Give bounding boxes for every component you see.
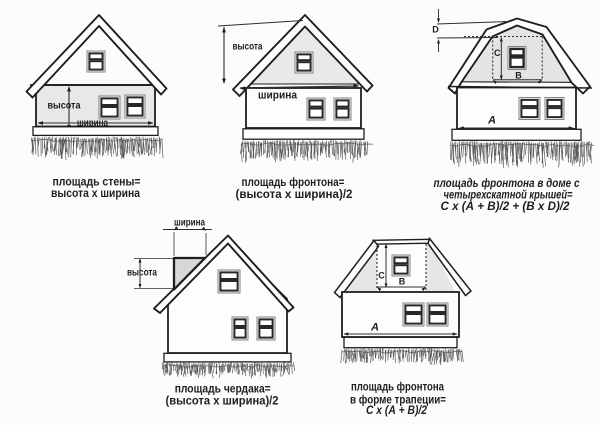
svg-text:высота: высота [127, 268, 157, 279]
svg-text:высота х ширина: высота х ширина [51, 186, 140, 200]
svg-text:площадь фронтона: площадь фронтона [351, 380, 444, 394]
svg-text:(высота х ширина)/2: (высота х ширина)/2 [236, 187, 353, 201]
svg-text:высота: высота [48, 101, 81, 112]
svg-text:ширина: ширина [258, 90, 298, 102]
svg-text:B: B [399, 277, 406, 287]
svg-text:A: A [370, 322, 379, 334]
svg-text:ширина: ширина [174, 218, 205, 229]
svg-text:C: C [378, 271, 385, 281]
svg-text:C: C [494, 48, 501, 58]
svg-text:(высота х ширина)/2: (высота х ширина)/2 [166, 394, 279, 408]
svg-text:высота: высота [233, 42, 263, 53]
svg-text:A: A [487, 115, 496, 127]
svg-text:B: B [515, 70, 522, 80]
svg-text:С х (А + В)/2 + (В х D)/2: С х (А + В)/2 + (В х D)/2 [441, 199, 570, 213]
svg-text:С х (А + В)/2: С х (А + В)/2 [366, 403, 427, 417]
svg-text:D: D [432, 24, 439, 34]
